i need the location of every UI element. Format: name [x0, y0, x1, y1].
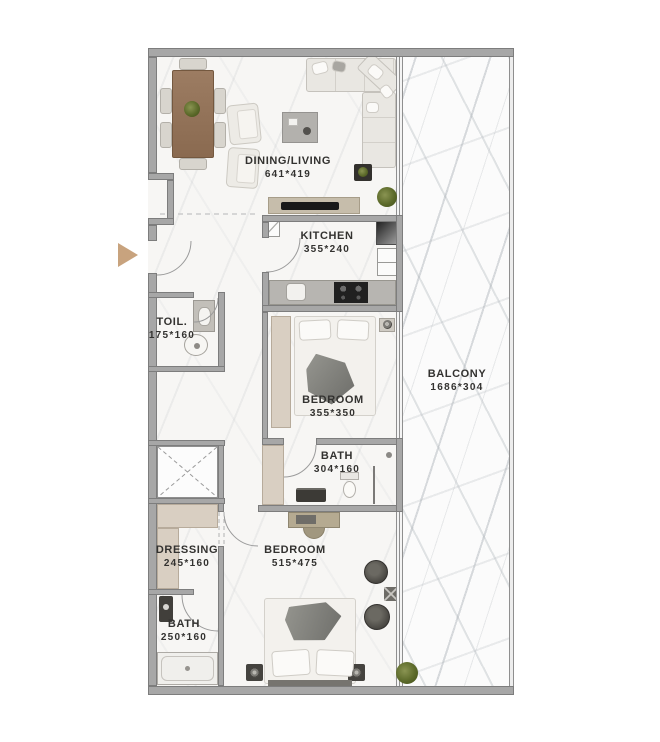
wall-left-mid — [148, 225, 157, 241]
room-label-bedroom2: BEDROOM 515*475 — [245, 544, 345, 570]
armchair — [226, 102, 262, 145]
room-dims: 304*160 — [287, 464, 387, 477]
room-label-bath2: BATH 250*160 — [134, 618, 234, 644]
wall-bedroom1-left — [262, 312, 268, 445]
kitchen-sink — [286, 283, 306, 301]
bath1-closet — [262, 445, 284, 505]
room-label-dining-living: DINING/LIVING 641*419 — [228, 155, 348, 181]
wall-kitchen-right — [396, 215, 403, 312]
wall-shaft-top — [148, 440, 225, 446]
room-dims: 245*160 — [137, 558, 237, 571]
bath2-drain-icon — [185, 666, 190, 671]
window-wall-balcony — [396, 57, 403, 686]
floor-plan: DINING/LIVING 641*419 KITCHEN 355*240 TO… — [0, 0, 660, 742]
room-name: BATH — [134, 618, 234, 632]
sofa-pillow — [331, 60, 347, 73]
wall-notch-top — [148, 173, 174, 180]
table-plant-icon — [184, 101, 200, 117]
pouf — [364, 604, 390, 630]
coffee-table-bowl — [303, 127, 311, 135]
dressing-wardrobe-top — [157, 504, 218, 528]
wall-notch-bottom — [148, 218, 174, 225]
room-dims: 250*160 — [134, 632, 234, 645]
living-plant-icon — [377, 187, 397, 207]
pouf — [364, 560, 388, 584]
room-label-kitchen: KITCHEN 355*240 — [277, 230, 377, 256]
coffee-table-tray — [288, 118, 298, 126]
dining-chair — [214, 88, 226, 114]
wall-bath1-bottom — [258, 505, 403, 512]
room-name: DRESSING — [137, 544, 237, 558]
room-name: DINING/LIVING — [228, 155, 348, 169]
room-label-bedroom1: BEDROOM 355*350 — [283, 394, 383, 420]
dining-chair — [179, 58, 207, 70]
service-shaft — [157, 446, 218, 498]
kitchen-cabinet — [377, 248, 397, 276]
bed-pillow — [298, 319, 331, 341]
room-label-bath1: BATH 304*160 — [287, 450, 387, 476]
bath1-vanity — [296, 488, 326, 502]
room-name: TOIL. — [132, 316, 212, 330]
bedroom2-lamp-icon — [250, 668, 260, 678]
room-label-toilet: TOIL. 175*160 — [132, 316, 212, 342]
stove — [334, 282, 368, 303]
bedroom2-plant-icon — [396, 662, 418, 684]
bath2-sink-basin — [163, 604, 169, 610]
bed-pillow — [315, 649, 354, 677]
wall-bottom — [148, 686, 514, 695]
tv — [281, 202, 339, 210]
wall-dressing-top — [148, 498, 225, 504]
wall-living-kitchen — [262, 215, 403, 222]
toilet-wc-drain — [194, 343, 200, 349]
room-dims: 175*160 — [132, 330, 212, 343]
room-name: BATH — [287, 450, 387, 464]
wall-toilet-top — [148, 292, 194, 298]
wall-bath1-right — [396, 438, 403, 512]
wall-kitchen-bottom — [262, 305, 403, 312]
fridge — [376, 220, 397, 245]
room-dims: 1686*304 — [407, 382, 507, 395]
side-table-plant-icon — [358, 167, 368, 177]
wall-bath2-top — [148, 589, 194, 595]
room-name: BEDROOM — [245, 544, 345, 558]
bedroom1-lamp-icon — [383, 320, 392, 329]
wall-bedroom1-bottom-b — [316, 438, 403, 445]
wall-toilet-bottom — [148, 366, 225, 372]
bedroom2-lamp-icon — [352, 668, 362, 678]
dining-chair — [179, 158, 207, 170]
bath2-shower-tray — [157, 652, 218, 685]
wall-bedroom1-bottom-a — [262, 438, 284, 445]
wall-left-upper — [148, 57, 157, 173]
entrance-arrow-icon — [118, 243, 138, 267]
room-name: BEDROOM — [283, 394, 383, 408]
room-dims: 515*475 — [245, 558, 345, 571]
bath1-toilet-bowl — [343, 481, 356, 498]
room-dims: 355*240 — [277, 244, 377, 257]
coffee-table — [282, 112, 318, 143]
desk-item — [296, 515, 316, 524]
sofa-pillow — [366, 102, 379, 113]
dining-chair — [160, 88, 172, 114]
dining-chair — [214, 122, 226, 148]
room-name: KITCHEN — [277, 230, 377, 244]
room-label-balcony: BALCONY 1686*304 — [407, 368, 507, 394]
room-name: BALCONY — [407, 368, 507, 382]
dining-chair — [160, 122, 172, 148]
wall-toilet-right — [218, 292, 225, 372]
wall-kitchen-left-upper — [262, 222, 269, 238]
bed-pillow — [336, 319, 369, 341]
balcony-railing — [509, 57, 514, 686]
room-dims: 641*419 — [228, 169, 348, 182]
room-dims: 355*350 — [283, 408, 383, 421]
room-label-dressing: DRESSING 245*160 — [137, 544, 237, 570]
wall-top — [148, 48, 514, 57]
armchair-cushion — [237, 109, 259, 140]
bed-pillow — [271, 649, 311, 678]
